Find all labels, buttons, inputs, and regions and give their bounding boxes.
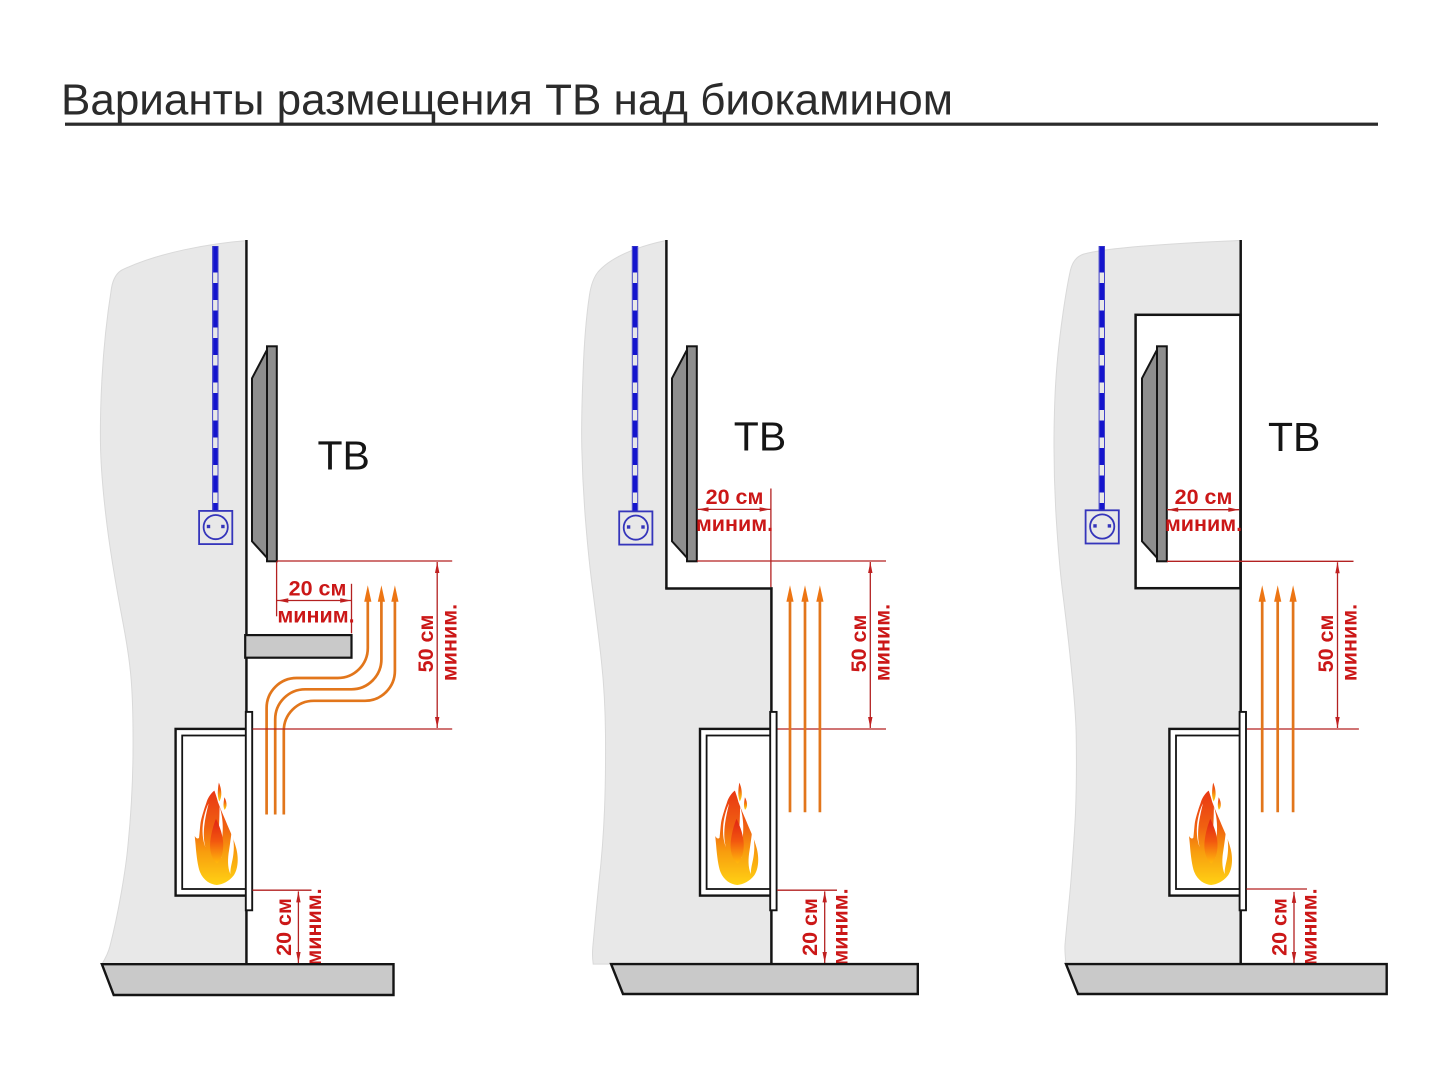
svg-text:миним.: миним.: [696, 512, 773, 536]
svg-text:миним.: миним.: [870, 604, 894, 681]
svg-text:Варианты размещения ТВ над био: Варианты размещения ТВ над биокамином: [61, 76, 953, 125]
svg-text:20 см: 20 см: [1175, 485, 1233, 509]
svg-text:ТВ: ТВ: [734, 413, 786, 459]
svg-text:миним.: миним.: [302, 888, 326, 965]
svg-text:ТВ: ТВ: [318, 433, 370, 479]
svg-text:50 см: 50 см: [847, 615, 871, 673]
svg-text:миним.: миним.: [1165, 512, 1242, 536]
svg-text:20 см: 20 см: [272, 898, 296, 956]
svg-text:50 см: 50 см: [1314, 615, 1338, 673]
svg-text:20 см: 20 см: [706, 485, 764, 509]
svg-text:миним.: миним.: [437, 604, 461, 681]
svg-text:миним.: миним.: [1298, 888, 1322, 965]
svg-text:20 см: 20 см: [1268, 898, 1292, 956]
svg-text:миним.: миним.: [828, 888, 852, 965]
svg-text:миним.: миним.: [1338, 604, 1362, 681]
svg-text:ТВ: ТВ: [1268, 414, 1320, 460]
svg-text:50 см: 50 см: [414, 615, 438, 673]
svg-text:20 см: 20 см: [798, 898, 822, 956]
svg-text:миним.: миним.: [277, 603, 354, 627]
svg-text:20 см: 20 см: [289, 576, 347, 600]
